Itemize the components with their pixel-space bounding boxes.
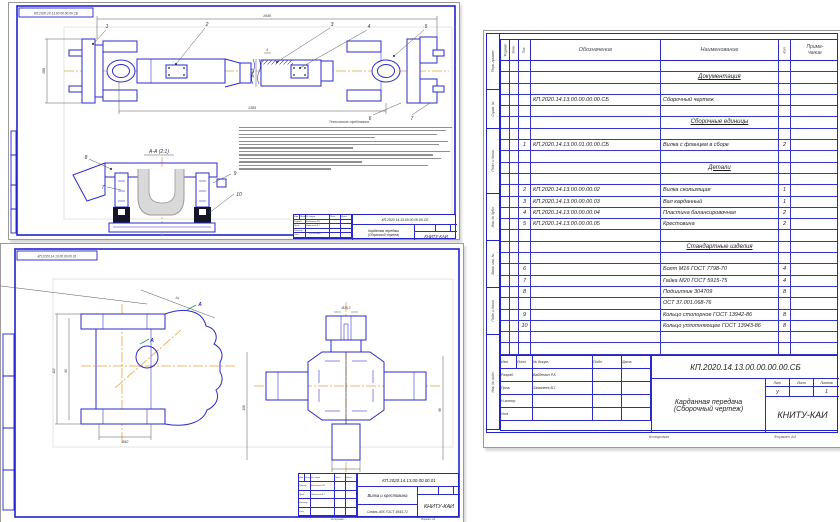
dim-overall: 1640: [263, 14, 271, 18]
sheet-assembly-drawing: КП.2020.14.13.00.00.00.00.СБ: [8, 2, 460, 240]
col-zone: Зона: [510, 40, 519, 60]
cardan-shaft-main-view: 1 2 3 4 5 6 7 1640 1385 180 Ø71,5: [42, 14, 449, 122]
spec-footer-format: Формат А4: [774, 434, 796, 439]
col-qty: Кол.: [779, 40, 791, 60]
details-material: Сталь 40Х ГОСТ 4543-71: [357, 504, 417, 518]
notes-line: [239, 147, 353, 148]
col-name: Наименование: [661, 40, 779, 60]
notes-lines: [239, 127, 459, 170]
spec-row: [501, 343, 837, 354]
notes-line: [239, 151, 450, 152]
assembly-signature-grid: Изм.Лист№ докум.Подп.ДатаРазраб.Вайдемян…: [294, 215, 352, 238]
callout-7b: 7: [102, 185, 105, 191]
spec-row: [501, 332, 837, 343]
notes-line: [239, 165, 428, 166]
spec-lit-values: у 1: [765, 386, 839, 396]
spec-row: [501, 129, 837, 140]
dim-tube-dia: Ø71,5: [251, 68, 255, 78]
notes-line: [239, 141, 448, 142]
col-designation: Обозначение: [531, 40, 661, 60]
spec-row: [501, 151, 837, 162]
col-pos: Поз.: [519, 40, 531, 60]
spec-row: [501, 106, 837, 117]
details-drawing-name: Вилка и крестовина: [357, 486, 417, 504]
assembly-footer-copied: Копировал: [309, 232, 321, 235]
spec-product-name: Карданная передача (Сборочный чертеж): [651, 378, 765, 432]
spec-row: Сборочные единицы: [501, 117, 837, 128]
details-lit-boxes: [417, 486, 460, 494]
dim-hole: Ø16,3: [341, 306, 351, 310]
details-signature-grid: Изм.Лист№ докум.Подп.ДатаРазраб.Вайдемян…: [299, 474, 357, 516]
corner-stamp-text: КП.2020.14.13.00.00.00.00.СБ: [34, 12, 78, 16]
view-letter-a-top: А: [197, 302, 202, 308]
spec-row: 6Болт М16 ГОСТ 7798-704: [501, 264, 837, 275]
spec-row: [501, 61, 837, 72]
notes-line: [239, 137, 375, 138]
dim-yoke-angle: 64: [175, 296, 180, 301]
notes-line: [239, 161, 362, 162]
spec-row: 4КП.2020.14.13.00.00.00.04Пластина балан…: [501, 208, 837, 219]
col-format: Формат: [501, 40, 510, 60]
notes-title: Технические требования: [239, 121, 459, 125]
drawing-workspace: КП.2020.14.13.00.00.00.00.СБ: [0, 0, 840, 522]
callout-2: 2: [205, 22, 209, 28]
dim-cross-height: 108: [242, 405, 246, 411]
spec-row: 2КП.2020.14.13.00.00.00.02Вилка скользящ…: [501, 185, 837, 196]
dim-yoke-height: 112: [52, 368, 56, 373]
callout-3: 3: [331, 22, 334, 28]
details-footer-copied: Копировал: [331, 518, 344, 521]
spec-row: ОСТ 37.001.068-76: [501, 298, 837, 309]
spec-row: 1КП.2020.14.13.00.01.00.00.СБВилка с фла…: [501, 140, 837, 151]
spec-row: КП.2020.14.13.00.00.00.00.СБСборочный че…: [501, 95, 837, 106]
notes-line: [239, 158, 441, 159]
spec-side-label: Перв. примен.: [486, 33, 500, 90]
spec-row: Стандартные изделия: [501, 242, 837, 253]
dim-secondary: 1385: [248, 106, 256, 110]
assembly-doc-number: КП.2020.14.13.00.00.00.00.СБ: [352, 215, 457, 224]
spec-side-label: Взам. инв. №: [486, 241, 500, 288]
dim-cross-width: 96: [438, 408, 442, 412]
notes-line: [239, 144, 439, 145]
section-label: А-А (2:1): [148, 149, 169, 155]
col-note: Приме-чание: [791, 40, 839, 60]
spec-header: Формат Зона Поз. Обозначение Наименовани…: [500, 39, 838, 61]
spec-doc-number: КП.2020.14.13.00.00.00.00.СБ: [651, 356, 839, 378]
details-org: КНИТУ-КАИ: [417, 494, 460, 518]
spec-rows: ДокументацияКП.2020.14.13.00.00.00.00.СБ…: [500, 61, 838, 355]
spec-row: 10Кольцо уплотняющее ГОСТ 13943-868: [501, 321, 837, 332]
notes-line: [239, 154, 433, 155]
spec-row: 8Подшипник 3047098: [501, 287, 837, 298]
cross-detail-view: 108 96 Ø16,3 Ø25 4 шт.: [242, 302, 443, 482]
spec-side-label: Подп. и дата: [486, 288, 500, 335]
details-footer-format: Формат А4: [421, 518, 435, 521]
sheet-details-drawing: КП.2020.14.13.00.00.00.01: [0, 243, 464, 522]
spec-row: 5КП.2020.14.13.00.00.00.05Крестовина2: [501, 219, 837, 230]
callout-1: 1: [106, 24, 109, 30]
spec-row: 7Гайка М20 ГОСТ 5915-754: [501, 276, 837, 287]
section-view-a-a: А-А (2:1): [73, 149, 242, 237]
assembly-org: КНИТУ-КАИ: [414, 231, 457, 240]
corner-stamp-text: КП.2020.14.13.00.00.00.01: [38, 255, 77, 259]
dim-flange: 180: [42, 68, 46, 74]
callout-4: 4: [368, 24, 371, 30]
notes-line: [239, 168, 331, 169]
assembly-lit-boxes: [414, 224, 457, 231]
spec-row: [501, 174, 837, 185]
spec-row: [501, 230, 837, 241]
spec-footer-copied: Копировал: [649, 434, 669, 439]
technical-requirements: Технические требования: [239, 121, 459, 172]
spec-org: КНИТУ-КАИ: [765, 396, 839, 432]
spec-side-label: Инв. № подл.: [486, 335, 500, 430]
spec-side-label: Инв. № дубл.: [486, 194, 500, 241]
spec-signature-grid: Изм.Лист№ докум.Подп.ДатаРазраб.Вайдемян…: [501, 356, 651, 430]
callout-9: 9: [234, 171, 237, 177]
spec-row: [501, 84, 837, 95]
assembly-drawing-name: Карданная передача (Сборочный чертеж): [352, 224, 414, 240]
dim-yoke-inner: 90: [64, 369, 68, 373]
spec-side-label: Подп. и дата: [486, 129, 500, 194]
callout-10: 10: [236, 192, 242, 198]
dim-yoke-width: Ø42: [121, 440, 129, 444]
view-letter-a-bottom: А: [149, 338, 154, 344]
spec-lit-header: Лит. Лист Листов: [765, 378, 839, 386]
callout-8: 8: [85, 155, 88, 161]
sheet-specification: Перв. примен.Справ. №Подп. и датаИнв. № …: [483, 30, 840, 448]
spec-row: 9Кольцо стопорное ГОСТ 13942-868: [501, 310, 837, 321]
spec-row: Детали: [501, 163, 837, 174]
notes-line: [239, 130, 446, 131]
details-title-block: КП.2020.14.13.00.00.00.01 Вилка и кресто…: [298, 473, 459, 517]
spec-title-block: КП.2020.14.13.00.00.00.00.СБ Карданная п…: [500, 355, 838, 431]
notes-line: [239, 134, 437, 135]
spec-row: Документация: [501, 72, 837, 83]
spec-side-strip: Перв. примен.Справ. №Подп. и датаИнв. № …: [486, 33, 500, 433]
callout-5: 5: [425, 24, 428, 30]
dim-wall: 4: [266, 48, 268, 52]
yoke-detail-view: А А 112 90 Ø42 64: [1, 286, 235, 444]
spec-side-label: Справ. №: [486, 90, 500, 129]
assembly-title-block: КП.2020.14.13.00.00.00.00.СБ Карданная п…: [293, 214, 456, 239]
notes-line: [239, 127, 452, 128]
spec-row: [501, 253, 837, 264]
details-doc-number: КП.2020.14.13.00.00.00.01: [357, 474, 460, 486]
spec-row: 3КП.2020.14.13.00.00.00.03Вал карданный1: [501, 197, 837, 208]
